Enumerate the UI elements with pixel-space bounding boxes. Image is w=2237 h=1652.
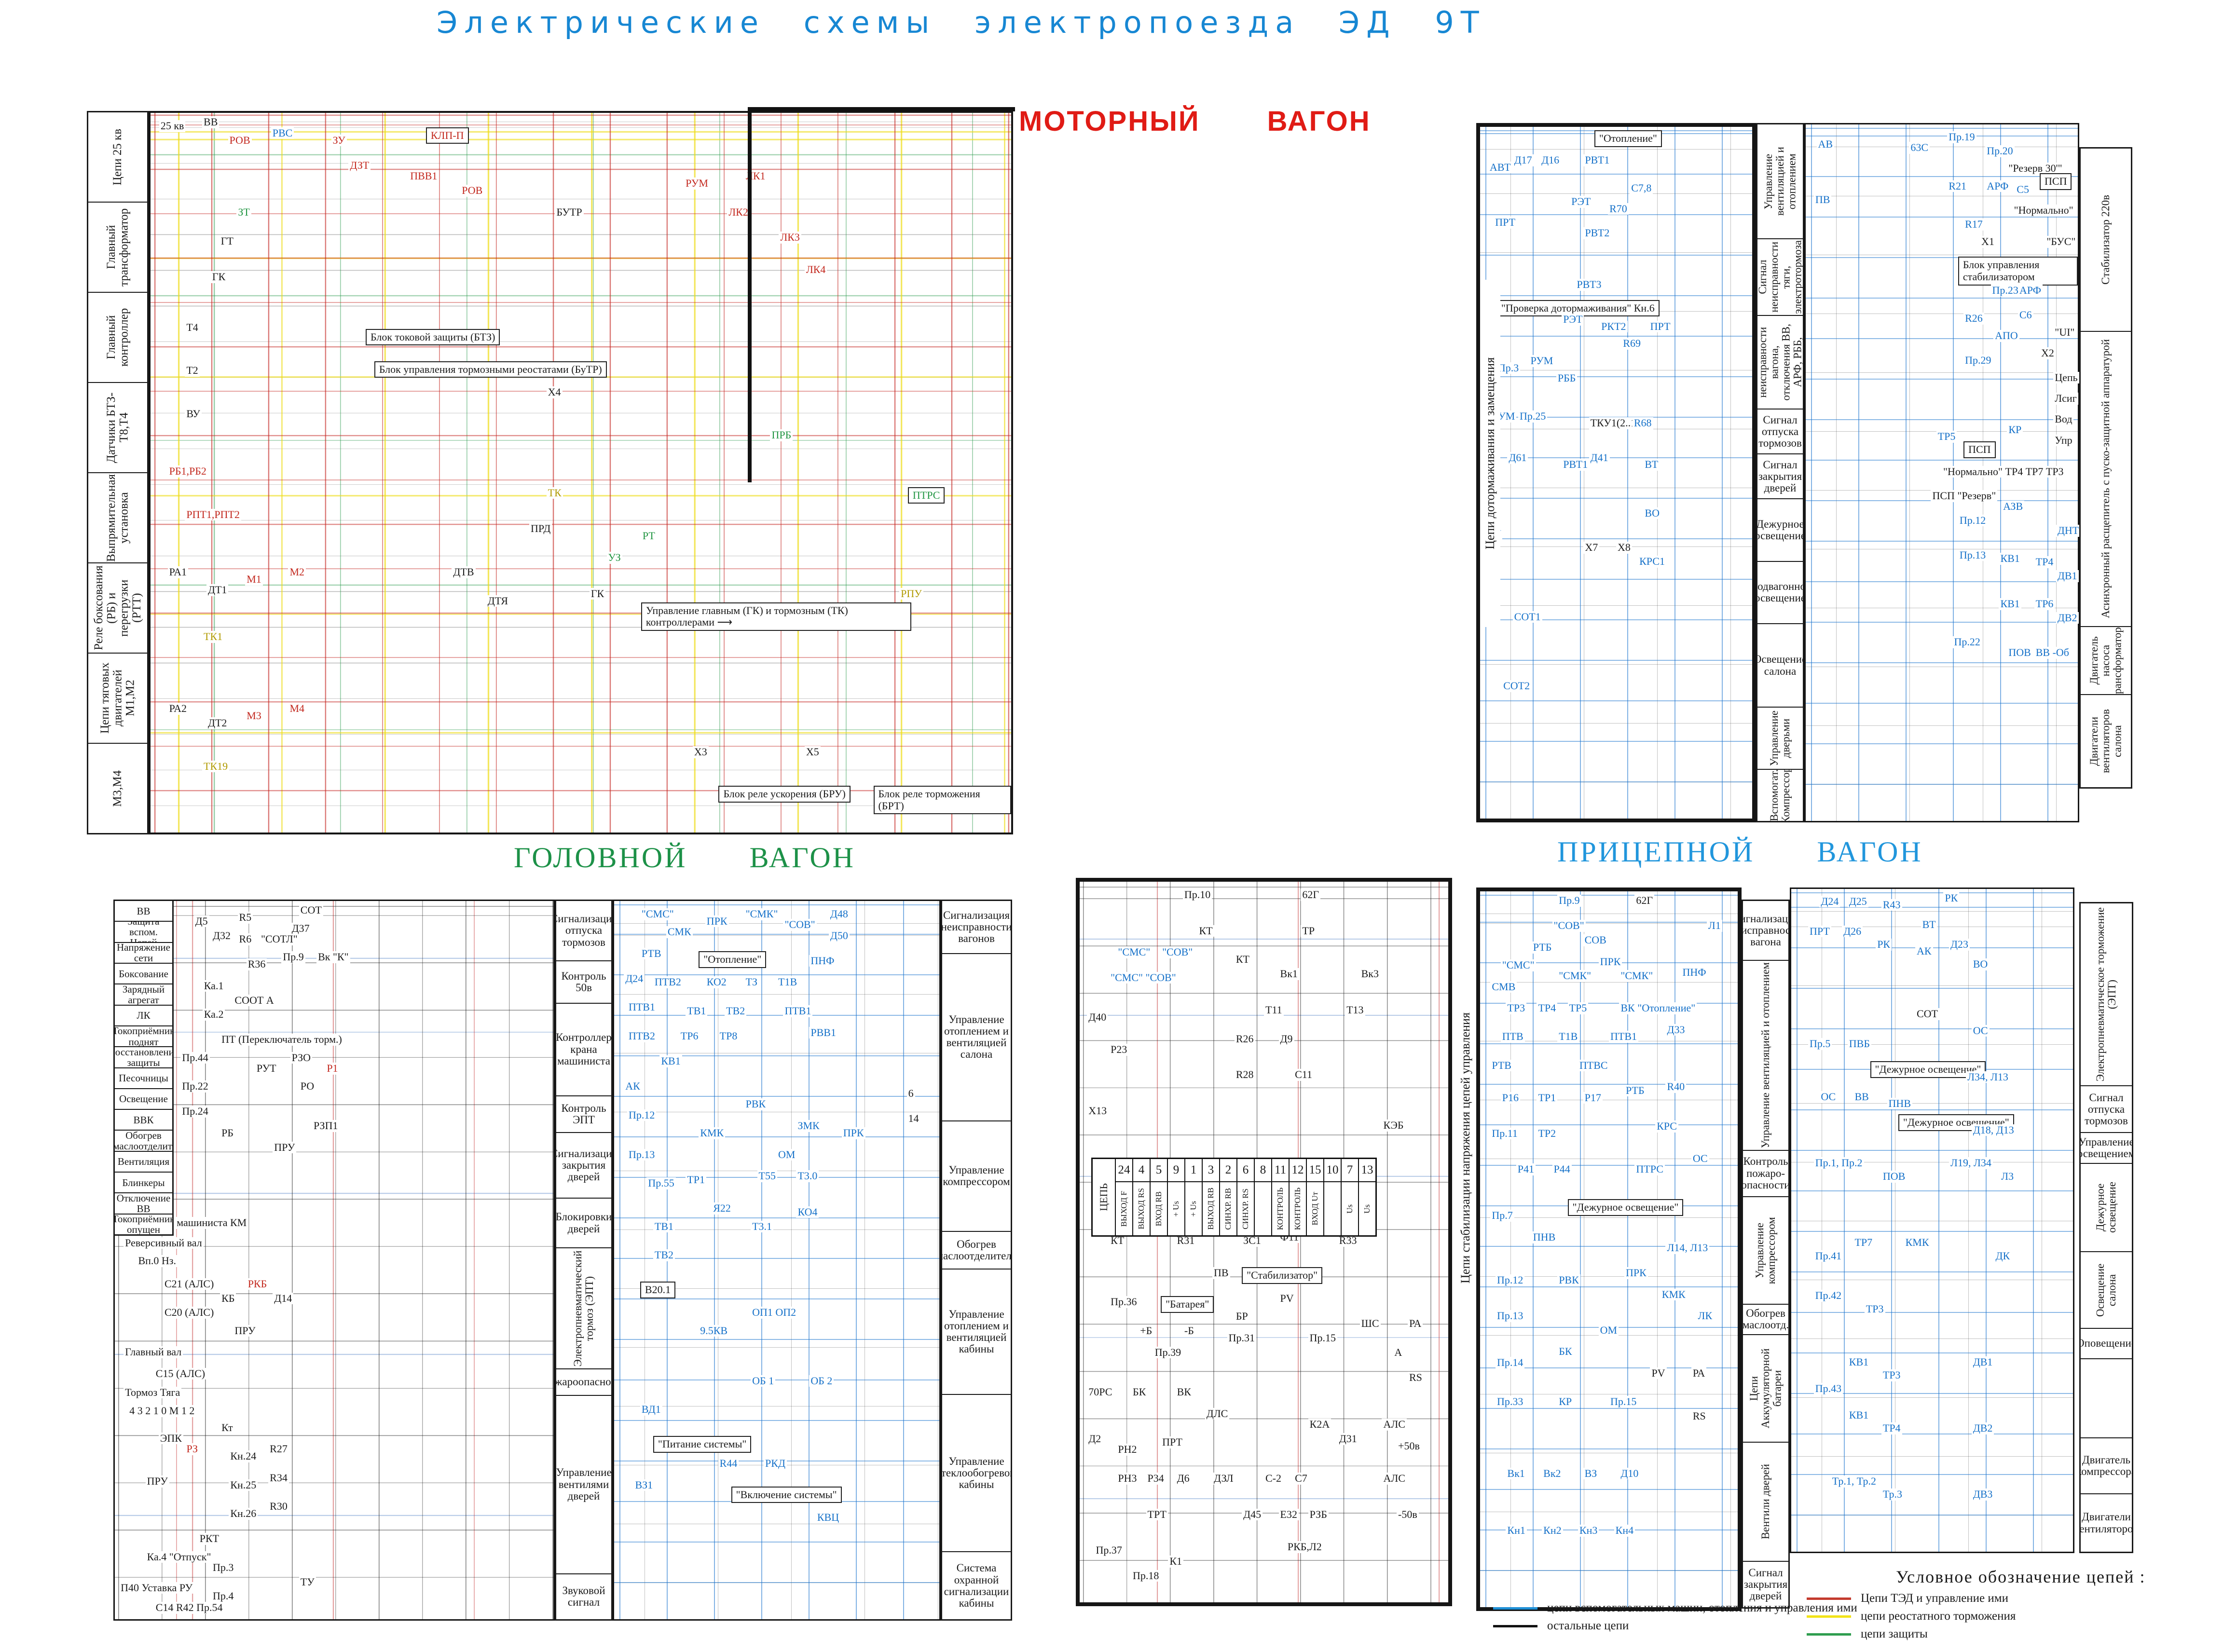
component-label: АВ — [1817, 138, 1835, 150]
component-label: Блок управления тормозными реостатами (Б… — [374, 361, 607, 378]
strip-cell-label: Цепи Аккумуляторной батареи — [1748, 1336, 1783, 1441]
component-label: Х8 — [1616, 542, 1632, 554]
component-label: ТР5 — [1568, 1002, 1589, 1014]
component-label: ПТ (Переключатель торм.) — [220, 1034, 343, 1046]
component-label: ГТ — [220, 235, 235, 247]
component-label: "Отопление" — [699, 951, 766, 968]
strip-cell: Токоприёмник поднят — [115, 1026, 172, 1047]
component-label: Пр.18 — [1131, 1570, 1160, 1582]
strip-cell: ЛК — [115, 1006, 172, 1026]
section-title-motor-car: МОТОРНЫЙ ВАГОН — [1019, 105, 1371, 137]
component-label: ТР1 — [1537, 1092, 1557, 1104]
component-label: Я22 — [712, 1202, 732, 1215]
component-label: СМК — [666, 926, 693, 938]
keb-pin-number: 15 — [1307, 1159, 1323, 1182]
strip-cell: ВВК — [115, 1110, 172, 1131]
strip-cell-label: Стабилизатор 220в — [2100, 195, 2112, 285]
keb-signal-cell: СИНХР. RB — [1220, 1182, 1236, 1235]
component-label: ТР6 — [2034, 598, 2055, 610]
strip-cell: Контроллер крана машиниста — [556, 1004, 611, 1096]
component-label: Д61 — [1507, 452, 1528, 464]
component-label: ПТВ2 — [653, 976, 683, 988]
component-label: Пр.44 — [180, 1052, 209, 1064]
component-label: РТБ — [1624, 1085, 1646, 1097]
component-label: АЗВ — [2002, 501, 2024, 513]
strip-cell: Восстановление защиты — [115, 1047, 172, 1068]
legend-color-swatch — [1807, 1615, 1851, 1618]
component-label: ДЛС — [1205, 1408, 1230, 1420]
component-label: ВК — [1176, 1386, 1193, 1398]
strip-cell: Стабилизатор 220в — [2081, 149, 2131, 332]
strip-cell-label: Двигатель насоса трансформатора — [2088, 627, 2123, 695]
keb-signal-label: ВХОД RB — [1154, 1191, 1164, 1226]
strip-cell: Двигатель насоса трансформатора — [2081, 627, 2131, 695]
component-label: ВО — [1643, 507, 1661, 519]
strip-cell-label: Напряжение сети — [116, 943, 171, 964]
component-label: Р16 — [1501, 1092, 1520, 1104]
component-label: С7,8 — [1630, 182, 1653, 194]
component-label: АВТ — [1488, 162, 1512, 174]
component-label: БР — [1235, 1311, 1249, 1323]
component-label: R21 — [1947, 180, 1968, 192]
strip-cell: Дежурное освещение — [1757, 499, 1803, 561]
strip-cell: Управление компрессором — [942, 1121, 1011, 1232]
legend-color-swatch — [1807, 1597, 1851, 1600]
component-label: Д41 — [1589, 452, 1610, 464]
component-label: Д6 — [1176, 1473, 1191, 1485]
strip-cell-label: Управление вентиляцией и отоплением — [1760, 962, 1771, 1148]
component-label: ЗУ — [331, 135, 347, 147]
component-label: С-2 — [1264, 1473, 1283, 1485]
component-label: Х3 — [693, 746, 709, 758]
component-label: ПТВ — [1501, 1031, 1525, 1043]
strip-cell-label: Сигнализация отпуска тормозов — [556, 913, 611, 948]
component-label: С21 (АЛС) — [163, 1278, 215, 1290]
component-label: ДВ1 — [1972, 1356, 1994, 1368]
strip-cell-label: Песочницы — [119, 1073, 168, 1083]
component-label: Д37 — [290, 923, 311, 935]
component-label: Пр.23 — [1991, 285, 2020, 297]
keb-pin-column: 1 + Us — [1185, 1159, 1203, 1235]
strip-cell: Управление компрессором — [1743, 1197, 1788, 1305]
component-label: R30 — [268, 1501, 289, 1513]
component-label: Пр.13 — [627, 1149, 656, 1161]
strip-cell: Вспомогат. Компрессор — [1757, 770, 1803, 821]
strip-cell: Оповещение — [2081, 1329, 2132, 1359]
strip-cell — [2081, 1359, 2132, 1438]
strip-cell: Сигнал неисправности тяги, электротормоз… — [1757, 239, 1803, 315]
component-label: R69 — [1621, 338, 1642, 350]
component-label: М1 — [245, 573, 263, 586]
component-label: Кн.25 — [229, 1479, 258, 1491]
strip-cell-label: Вспомогат. Компрессор — [1769, 770, 1792, 821]
component-label: Д2 — [1087, 1433, 1102, 1445]
component-label: С11 — [1293, 1069, 1314, 1081]
motor-aux-schematic: "Отопление"АВТД17Д16РВТ1РЭТС7,8R70РВТ2ПР… — [1476, 123, 1756, 822]
keb-pin-column: 11 КОНТРОЛЬ — [1272, 1159, 1290, 1235]
component-label: R43 — [1881, 899, 1902, 911]
component-label: "БУС" — [2045, 236, 2077, 248]
component-label: Д31 — [1338, 1433, 1359, 1445]
component-label: АПО — [1993, 330, 2019, 342]
component-label: PV — [1279, 1293, 1295, 1305]
component-label: РЗО — [290, 1052, 312, 1064]
component-label: ШС — [1360, 1318, 1381, 1330]
keb-pin-number: 13 — [1359, 1159, 1375, 1182]
component-label: РВС — [271, 127, 294, 139]
component-label: Пр.24 — [180, 1106, 209, 1118]
component-label: Пр.55 — [646, 1177, 675, 1189]
component-label: ЭПК — [159, 1433, 183, 1445]
keb-signal-cell: ВЫХОД RS — [1133, 1182, 1150, 1235]
strip-cell: Управление отоплением и вентиляцией каби… — [942, 1270, 1011, 1395]
component-label: Д48 — [829, 908, 850, 920]
component-label: ТВ2 — [725, 1005, 746, 1017]
strip-cell: Датчики БТЗ-Т8,Т4 — [88, 383, 147, 473]
component-label: РК — [1876, 939, 1892, 951]
component-label: Д45 — [1242, 1509, 1263, 1521]
component-label: ПРТ — [1649, 321, 1672, 333]
component-label: ПРК — [705, 915, 729, 928]
strip-cell: Электропневматический тормоз (ЭПТ) — [556, 1248, 611, 1369]
keb-signal-label: Us — [1362, 1204, 1372, 1214]
legend-left-column: цепи вспомогательных машин, отопления и … — [1493, 1601, 1857, 1633]
component-label: "СМС" "СОВ" — [1109, 972, 1178, 984]
component-label: Л19, Л34 — [1949, 1157, 1993, 1169]
strip-cell: Подвагонное освещение — [1757, 562, 1803, 624]
component-label: ПРБ — [770, 429, 793, 441]
motor-aux-left-vertical-label: Цепи дотормаживания и замещения — [1480, 280, 1500, 627]
strip-cell-label: Вентили дверей — [1760, 1464, 1771, 1539]
strip-cell-label: ВВК — [133, 1115, 153, 1125]
component-label: РА — [1408, 1318, 1423, 1330]
component-label: Х7 — [1583, 542, 1599, 554]
motor-stabilizer-annotations: АВ63СПр.19Пр.20"Резерв 30'"R21АРФС5ПСП"Н… — [1806, 124, 2078, 821]
keb-pin-number: 7 — [1342, 1159, 1358, 1182]
component-label: Т11 — [1264, 1004, 1284, 1016]
component-label: Пр.9 — [281, 951, 305, 963]
component-label: С7 — [1293, 1473, 1309, 1485]
component-label: Д26 — [1842, 926, 1863, 938]
strip-cell-label: Управление освещением — [2081, 1136, 2132, 1160]
strip-cell-label: Дежурное освещение — [1757, 519, 1803, 542]
component-label: РББ — [1556, 372, 1578, 384]
component-label: Блок реле торможения (БРТ) — [874, 786, 1011, 814]
component-label: ТР7 — [1853, 1237, 1874, 1249]
legend-label: Цепи ТЭД и управление ими — [1861, 1592, 2008, 1605]
component-label: Р44 — [1552, 1163, 1572, 1175]
keb-pin-number: 3 — [1203, 1159, 1219, 1182]
component-label: Пр.3 — [211, 1562, 235, 1574]
legend-label: остальные цепи — [1547, 1619, 1629, 1633]
component-label: ДВ1 — [2056, 570, 2079, 582]
component-label: КВЦ — [816, 1512, 840, 1524]
legend-label: цепи реостатного торможения — [1861, 1610, 2016, 1623]
component-label: РВТ3 — [1575, 279, 1603, 291]
strip-cell: Контроль ЭПТ — [556, 1096, 611, 1133]
component-label: R26 — [1235, 1033, 1255, 1045]
component-label: -Б — [1183, 1325, 1195, 1337]
component-label: Пр.33 — [1496, 1396, 1524, 1408]
component-label: ДЗЛ — [1212, 1473, 1235, 1485]
strip-cell: Обогрев маслоотд. — [1743, 1305, 1788, 1335]
strip-cell: ВВ — [115, 901, 172, 922]
strip-cell-label: ЛК — [137, 1010, 150, 1021]
component-label: ПТВ1 — [1609, 1031, 1638, 1043]
component-label: ГК — [590, 588, 605, 600]
component-label: Пр.13 — [1958, 549, 1987, 561]
component-label: БК — [1131, 1386, 1147, 1398]
component-label: П40 Уставка РУ — [119, 1582, 194, 1594]
component-label: ПНФ — [809, 955, 836, 967]
keb-signal-cell: КОНТРОЛЬ — [1290, 1182, 1306, 1235]
keb-pin-number: 11 — [1272, 1159, 1289, 1182]
component-label: R26 — [1963, 313, 1984, 325]
component-label: Тр.1, Тр.2 — [1831, 1475, 1878, 1488]
component-label: РВТ1 — [1583, 154, 1611, 166]
component-label: С6 — [2018, 309, 2033, 321]
component-label: 9.5КВ — [699, 1325, 729, 1337]
component-label: КМК — [699, 1127, 725, 1139]
legend-row: цепи защиты — [1807, 1627, 2016, 1641]
component-label: РО — [299, 1080, 316, 1092]
component-label: Д23 — [1949, 939, 1970, 951]
component-label: Пр.12 — [1496, 1274, 1524, 1286]
component-label: Ка.4 "Отпуск" — [146, 1551, 213, 1563]
strip-cell: Цепи тяговых двигателей М1,М2 — [88, 654, 147, 744]
component-label: Вк1 — [1506, 1468, 1526, 1480]
component-label: ТР1 — [686, 1174, 706, 1186]
component-label: РБ1,РБ2 — [168, 465, 208, 478]
component-label: Т4 — [185, 322, 199, 334]
component-label: Д50 — [829, 930, 850, 942]
component-label: АЛС — [1382, 1473, 1406, 1485]
component-label: РТВ — [640, 948, 663, 960]
component-label: "Отопление" — [1594, 130, 1662, 147]
component-label: ДТВ — [452, 566, 475, 578]
strip-cell-label: Зарядный агрегат — [116, 984, 171, 1005]
strip-cell-label: Сигнализация неисправности вагонов — [942, 910, 1011, 944]
component-label: Вп.0 Нз. — [137, 1255, 178, 1267]
strip-cell: Сигнализация отпуска тормозов — [556, 901, 611, 961]
legend-row: Цепи ТЭД и управление ими — [1807, 1592, 2016, 1605]
component-label: ДВ3 — [1972, 1488, 1994, 1501]
keb-signal-cell: Us — [1342, 1182, 1358, 1235]
keb-signal-label: СИНХР. RS — [1241, 1188, 1250, 1229]
strip-cell-label: Звуковой сигнал — [557, 1585, 610, 1608]
component-label: АК — [1915, 945, 1933, 957]
strip-cell: Цепи 25 кв — [88, 112, 147, 203]
component-label: РВК — [744, 1098, 768, 1110]
strip-cell-label: Управление компрессором — [1754, 1198, 1777, 1303]
component-label: Лсиг — [2053, 393, 2078, 405]
component-label: БК — [1557, 1346, 1573, 1358]
component-label: Р41 — [1516, 1163, 1536, 1175]
component-label: R70 — [1608, 203, 1629, 215]
component-label: "СОВ" — [783, 919, 816, 931]
keb-signal-cell — [1324, 1182, 1341, 1235]
keb-pin-number: 6 — [1237, 1159, 1254, 1182]
component-label: ТР — [1301, 925, 1316, 937]
strip-cell-label: Реле боксования (РБ) и перегрузки (РТТ) — [93, 564, 143, 652]
component-label: Кт — [220, 1422, 234, 1434]
component-label: R27 — [268, 1443, 289, 1455]
component-label: РУМ — [1529, 355, 1555, 367]
component-label: Л3 — [2000, 1171, 2015, 1183]
frame-line — [748, 107, 1015, 111]
component-label: "Питание системы" — [653, 1436, 751, 1453]
component-label: R44 — [718, 1458, 739, 1470]
motor-aux-annotations: "Отопление"АВТД17Д16РВТ1РЭТС7,8R70РВТ2ПР… — [1480, 127, 1752, 819]
strip-cell-label: Сигнализация закрытия дверей — [556, 1148, 611, 1183]
component-label: ТК19 — [202, 761, 229, 773]
keb-signal-label: ВХОД Uт — [1310, 1192, 1320, 1225]
strip-cell: Система охранной сигнализации кабины — [942, 1552, 1011, 1619]
component-label: ПНВ — [1887, 1098, 1912, 1110]
component-label: КЛП-П — [426, 127, 469, 144]
component-label: Блок управления стабилизатором — [1958, 257, 2078, 285]
keb-signal-label: СИНХР. RB — [1223, 1188, 1233, 1230]
strip-cell: Защита вспом. Цепей — [115, 922, 172, 942]
keb-signal-label: КОНТРОЛЬ — [1276, 1188, 1285, 1230]
strip-cell: Песочницы — [115, 1068, 172, 1089]
component-label: Реверсивный вал — [124, 1237, 204, 1249]
keb-signal-cell: КОНТРОЛЬ — [1272, 1182, 1289, 1235]
component-label: Х4 — [547, 386, 563, 398]
motor-power-left-strip: Цепи 25 квГлавный трансформаторГлавный к… — [87, 111, 149, 834]
legend-row: цепи реостатного торможения — [1807, 1610, 2016, 1623]
component-label: ДНТ — [2056, 525, 2080, 537]
strip-cell: Электропневматическое торможение (ЭПТ) — [2081, 903, 2132, 1086]
component-label: ТР6 — [679, 1030, 700, 1042]
strip-cell: Управление дверьми — [1757, 708, 1803, 770]
component-label: КРС — [1655, 1120, 1678, 1133]
component-label: Пр.36 — [1109, 1296, 1138, 1308]
component-label: Д9 — [1279, 1033, 1294, 1045]
component-label: ПТРС — [1634, 1163, 1665, 1175]
component-label: ПСП "Резерв" — [1931, 490, 1997, 502]
component-label: ТК — [547, 487, 563, 499]
trailer-annotations: Пр.962Г"СОВ"СОВРТБЛ1"СМС"СМВ"СМК"ПРК"СМК… — [1480, 891, 1738, 1607]
schematic-poster: { "page_title": "Электрические схемы эле… — [0, 0, 2237, 1652]
strip-cell: Управление вентилями дверей — [556, 1396, 611, 1574]
component-label: СООТ А — [233, 995, 275, 1007]
component-label: РЭТ — [1562, 314, 1584, 326]
keb-pin-column: 5 ВХОД RB — [1151, 1159, 1168, 1235]
component-label: ГК — [211, 271, 227, 283]
strip-cell-label: Асинхронный расщепитель с пуско-защитной… — [2100, 339, 2112, 618]
keb-signal-label: + Us — [1189, 1201, 1198, 1217]
component-label: Блок реле ускорения (БРУ) — [718, 786, 850, 803]
component-label: 4 3 2 1 0 М 1 2 — [128, 1405, 196, 1417]
component-label: Т2 — [185, 365, 199, 377]
head-car-right-strip: Сигнализация неисправности вагоновУправл… — [941, 900, 1012, 1621]
component-label: ВЗ — [1583, 1468, 1599, 1480]
keb-signal-cell: + Us — [1168, 1182, 1184, 1235]
component-label: Пр.11 — [1490, 1128, 1519, 1140]
strip-cell: Цепи Аккумуляторной батареи — [1743, 1335, 1788, 1443]
strip-cell-label: Управление дверьми — [1769, 709, 1792, 768]
keb-signal-label: ВЫХОД F — [1119, 1191, 1129, 1227]
legend-color-swatch — [1493, 1607, 1537, 1610]
strip-cell: Сигнализация закрытия дверей — [556, 1133, 611, 1199]
component-label: Д17 — [1513, 154, 1534, 166]
component-label: Пр.39 — [1153, 1347, 1182, 1359]
component-label: ЛК3 — [779, 232, 801, 244]
component-label: R34 — [268, 1472, 289, 1484]
page-title: Электрические схемы электропоезда ЭД 9Т — [437, 5, 1486, 40]
component-label: Пр.10 — [1183, 889, 1212, 901]
component-label: ВВ — [202, 116, 219, 128]
head-car-middle-strip: Сигнализация отпуска тормозовКонтроль 50… — [555, 900, 613, 1621]
strip-cell-label: Отключение ВВ — [116, 1193, 171, 1214]
component-label: ТР4 — [1537, 1002, 1557, 1014]
component-label: ТР2 — [1537, 1128, 1557, 1140]
component-label: РА2 — [168, 703, 188, 715]
strip-cell-label: ВВ — [137, 906, 150, 916]
component-label: ТР8 — [718, 1030, 739, 1042]
strip-cell-label: Сигнал неисправности тяги, электротормоз… — [1757, 240, 1803, 314]
component-label: ЛК2 — [727, 206, 750, 218]
keb-pin-column: 6 СИНХР. RS — [1237, 1159, 1255, 1235]
component-label: Вк2 — [1542, 1468, 1562, 1480]
strip-cell: Токоприёмник опущен — [115, 1215, 172, 1234]
keb-signal-cell: ВЫХОД RB — [1203, 1182, 1219, 1235]
strip-cell: Контроль 50в — [556, 961, 611, 1004]
component-label: Цепь — [2053, 372, 2079, 384]
component-label: ПРУ — [146, 1475, 169, 1488]
cab-signalling-annotations: Пр.1062ГКТТР"СМС""СОВ"КТ"СМС" "СОВ"Вк1Вк… — [1080, 882, 1448, 1602]
component-label: КМК — [1661, 1289, 1687, 1301]
strip-cell-label: М3,М4 — [111, 770, 124, 807]
head-car-aux-annotations: "СМС"СМКПРК"СМК""СОВ"Д48Д50РТВ"Отопление… — [614, 901, 939, 1619]
component-label: ТУ — [299, 1576, 316, 1588]
trailer-far-right-strip: Электропневматическое торможение (ЭПТ)Си… — [2079, 902, 2133, 1553]
component-label: РК — [1943, 892, 1959, 904]
strip-cell-label: Главный трансформатор — [105, 204, 131, 291]
component-label: ДЗТ — [348, 160, 371, 172]
component-label: ДК — [1994, 1250, 2011, 1262]
component-label: X1 — [1980, 236, 1996, 248]
component-label: Пр.7 — [1490, 1210, 1514, 1222]
strip-cell-label: Вентиляция — [118, 1156, 169, 1167]
component-label: "Включение системы" — [731, 1487, 842, 1503]
component-label: АРФ — [2018, 285, 2043, 297]
legend-row: цепи вспомогательных машин, отопления и … — [1493, 1601, 1857, 1615]
component-label: 6 — [907, 1088, 915, 1100]
strip-cell-label: Цепи тяговых двигателей М1,М2 — [99, 655, 137, 742]
component-label: СОТ — [299, 904, 323, 916]
component-label: Р17 — [1583, 1092, 1603, 1104]
component-label: Кн.24 — [229, 1450, 258, 1462]
component-label: БУТР — [555, 206, 583, 218]
component-label: ВТ — [1643, 459, 1660, 471]
component-label: ТР5 — [1936, 431, 1957, 443]
strip-cell-label: Контроль ЭПТ — [557, 1103, 610, 1126]
strip-cell-label: Дежурное освещение — [2095, 1165, 2118, 1250]
strip-cell-label: Контроль 50в — [557, 970, 610, 994]
strip-cell: Сигнал отпуска тормозов — [1757, 410, 1803, 454]
component-label: ОМ — [777, 1149, 796, 1161]
component-label: R5 — [238, 912, 253, 924]
strip-cell: Зарядный агрегат — [115, 984, 172, 1005]
keb-pin-number: 24 — [1116, 1159, 1132, 1182]
keb-signal-cell: ВХОД Uт — [1307, 1182, 1323, 1235]
component-label: ПНФ — [1681, 967, 1708, 979]
component-label: ВВ -Об — [2034, 647, 2071, 659]
component-label: Пр.15 — [1308, 1332, 1337, 1344]
strip-cell-label: Выпрямительная установка — [105, 474, 131, 562]
